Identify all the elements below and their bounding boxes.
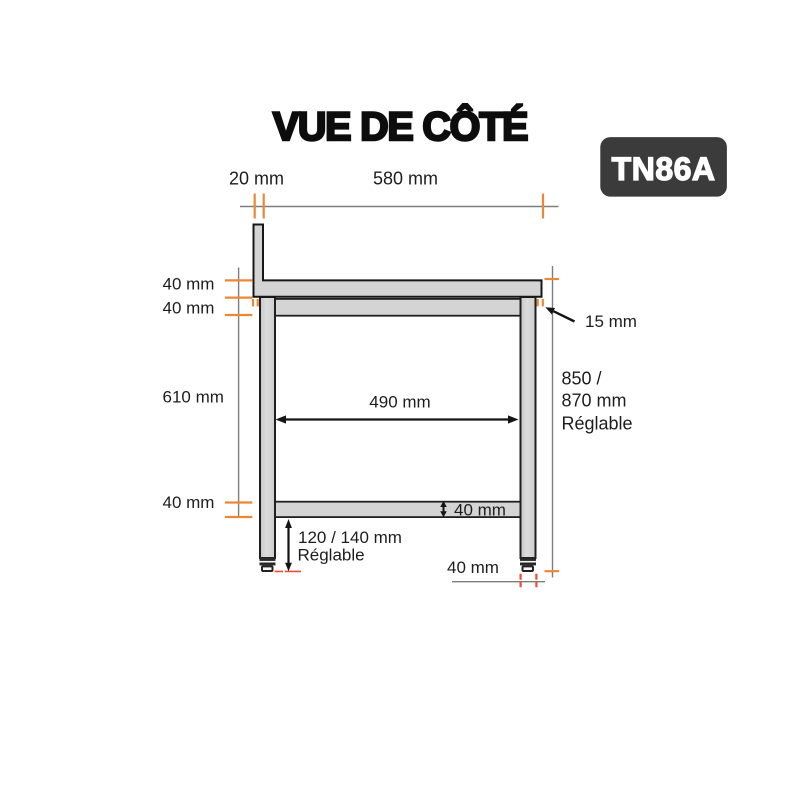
svg-text:20 mm: 20 mm <box>229 168 284 188</box>
svg-text:610 mm: 610 mm <box>163 388 224 407</box>
svg-text:VUE DE CÔTÉ: VUE DE CÔTÉ <box>273 104 528 149</box>
svg-text:870 mm: 870 mm <box>562 391 627 411</box>
svg-text:40 mm: 40 mm <box>163 275 215 294</box>
svg-text:Réglable: Réglable <box>562 414 633 434</box>
svg-text:40 mm: 40 mm <box>163 493 215 512</box>
svg-text:TN86A: TN86A <box>612 151 716 187</box>
svg-text:490 mm: 490 mm <box>369 393 430 412</box>
svg-text:120 / 140 mm: 120 / 140 mm <box>298 528 402 547</box>
svg-text:850 /: 850 / <box>562 368 602 388</box>
svg-text:15 mm: 15 mm <box>585 312 637 331</box>
svg-text:Réglable: Réglable <box>298 545 365 564</box>
svg-text:580 mm: 580 mm <box>373 168 438 188</box>
svg-text:40 mm: 40 mm <box>454 500 506 519</box>
svg-text:40 mm: 40 mm <box>163 299 215 318</box>
svg-text:40 mm: 40 mm <box>447 558 499 577</box>
